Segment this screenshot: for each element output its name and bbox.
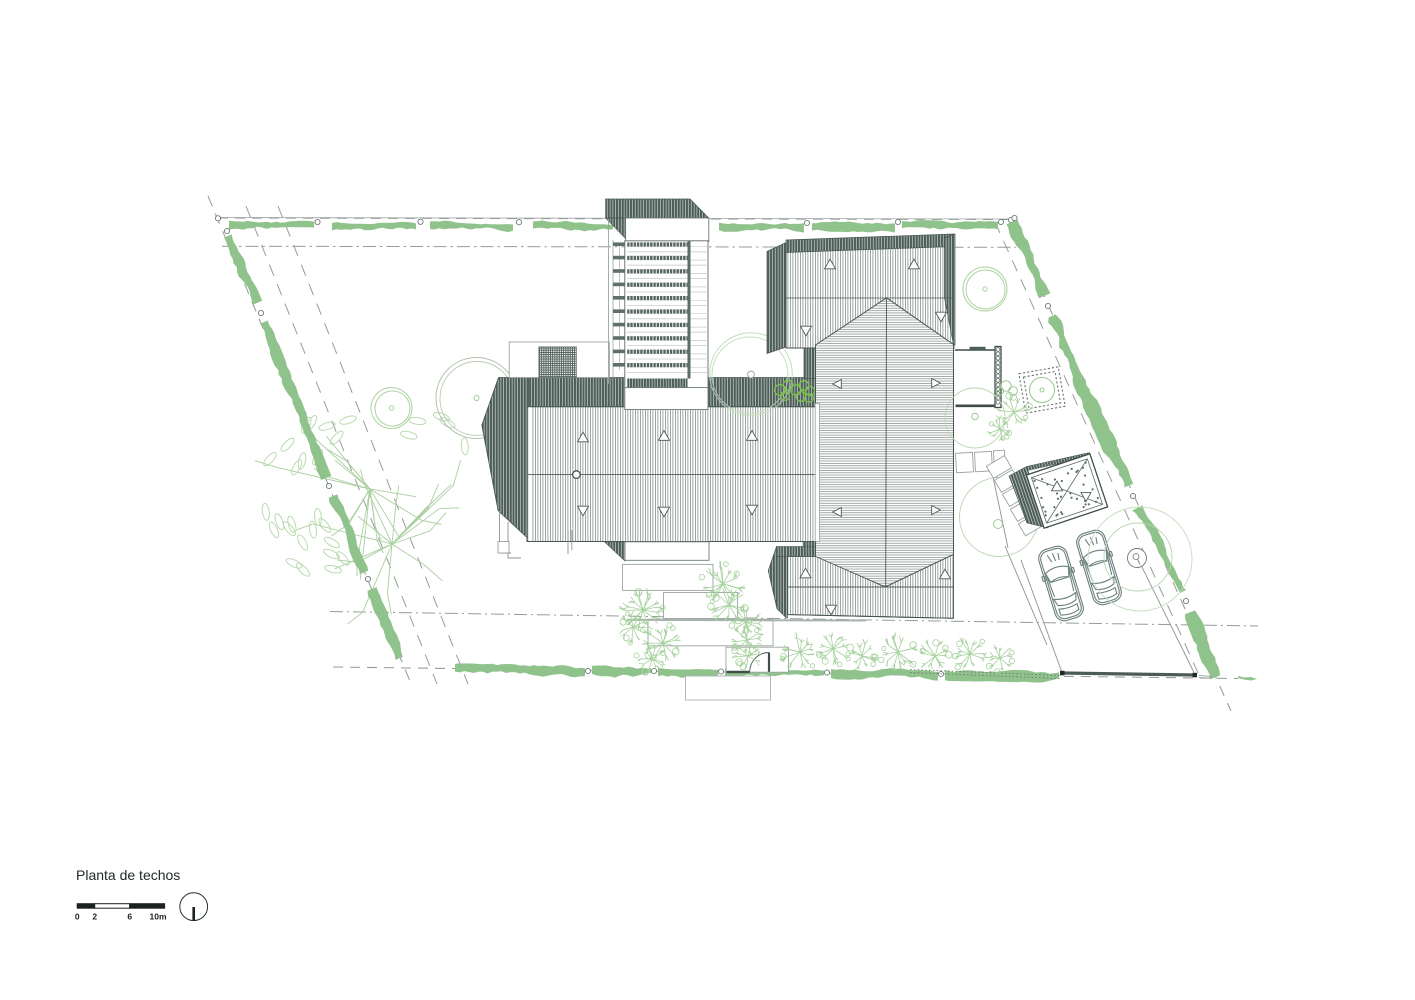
svg-text:10m: 10m — [149, 912, 166, 922]
svg-text:2: 2 — [92, 912, 97, 922]
svg-text:Planta de techos: Planta de techos — [76, 867, 180, 883]
svg-text:6: 6 — [127, 912, 132, 922]
svg-text:0: 0 — [75, 912, 80, 922]
